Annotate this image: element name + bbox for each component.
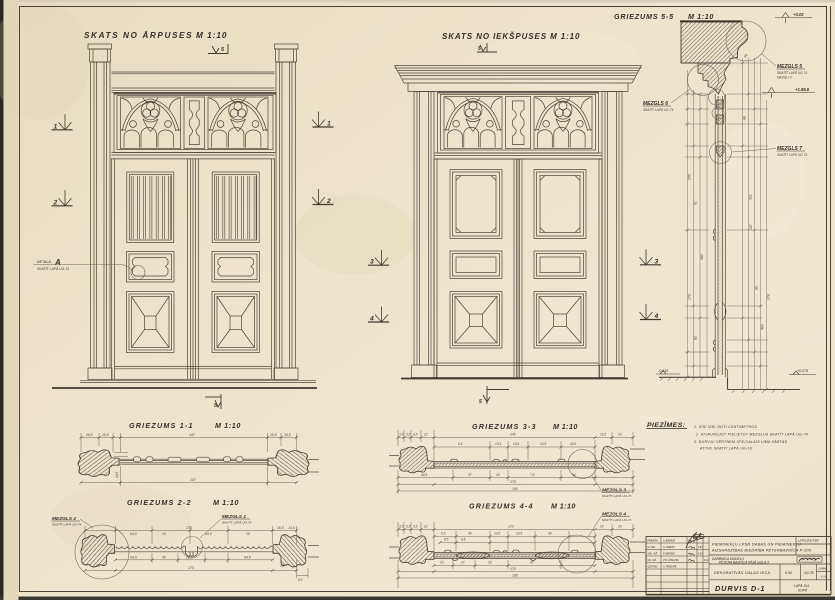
svg-text:14,5: 14,5 [288, 526, 295, 530]
svg-text:6.12: 6.12 [704, 560, 709, 562]
svg-text:6.04: 6.04 [785, 571, 792, 575]
svg-text:34: 34 [468, 532, 472, 536]
svg-text:178: 178 [510, 567, 516, 571]
svg-text:UG-78: UG-78 [804, 571, 814, 575]
svg-text:5: 5 [478, 46, 481, 52]
svg-text:82: 82 [694, 336, 698, 340]
svg-text:482: 482 [700, 254, 704, 260]
svg-text:KOPĀ: KOPĀ [798, 589, 808, 593]
svg-text:8,5: 8,5 [298, 578, 303, 582]
svg-text:3,5: 3,5 [399, 433, 404, 437]
svg-text:3: 3 [655, 258, 659, 265]
svg-text:14,5: 14,5 [115, 472, 119, 478]
svg-text:ATTIKI SKATĪT LAPĀ UG-16: ATTIKI SKATĪT LAPĀ UG-16 [699, 447, 752, 451]
svg-text:172: 172 [508, 525, 514, 529]
svg-text:14,5: 14,5 [540, 442, 546, 446]
svg-text:9,5: 9,5 [461, 538, 466, 542]
svg-text:M 1:10: M 1:10 [553, 422, 578, 431]
svg-text:GRIEZUMS 4-4: GRIEZUMS 4-4 [469, 502, 534, 511]
svg-text:14: 14 [600, 525, 604, 529]
svg-text:3: 3 [370, 259, 374, 266]
svg-text:4: 4 [369, 316, 374, 323]
svg-text:LATVIJAS PSR: LATVIJAS PSR [798, 539, 819, 543]
svg-text:M 1:10: M 1:10 [688, 12, 714, 21]
svg-text:10,5: 10,5 [270, 433, 277, 437]
svg-text:12: 12 [424, 433, 428, 437]
svg-text:V.B. LĪVMANIS: V.B. LĪVMANIS [663, 559, 679, 562]
svg-text:PRIEKŠN.: PRIEKŠN. [648, 540, 659, 543]
svg-text:GRIEZUMS 1-1: GRIEZUMS 1-1 [129, 421, 194, 430]
svg-text:IZ. DAĻ.: IZ. DAĻ. [647, 546, 656, 549]
svg-text:145: 145 [510, 433, 516, 437]
svg-text:42: 42 [530, 561, 534, 565]
svg-text:SKATĪT LAPĀ UG-74: SKATĪT LAPĀ UG-74 [602, 518, 632, 522]
svg-text:4.82: 4.82 [698, 553, 703, 556]
svg-text:PĒTERA BAZNĪCA RĪGĀ GOLA 3: PĒTERA BAZNĪCA RĪGĀ GOLA 3 [719, 560, 769, 564]
svg-text:10,5: 10,5 [186, 556, 193, 560]
svg-text:SKATĪT LAPĀ UG-74: SKATĪT LAPĀ UG-74 [37, 267, 69, 271]
svg-text:+0.075: +0.075 [797, 369, 808, 373]
svg-text:A. PRIEDĪTE: A. PRIEDĪTE [662, 566, 677, 569]
svg-text:147: 147 [189, 433, 195, 437]
svg-text:13,5: 13,5 [494, 532, 500, 536]
svg-text:255: 255 [688, 174, 692, 181]
svg-text:37: 37 [468, 473, 472, 477]
svg-text:178: 178 [510, 480, 516, 484]
svg-text:DETAĻA: DETAĻA [37, 260, 51, 264]
svg-text:64,5: 64,5 [130, 532, 137, 536]
svg-text:278: 278 [767, 294, 771, 301]
svg-text:44,5: 44,5 [421, 473, 427, 477]
svg-text:M 1:10: M 1:10 [215, 421, 241, 430]
svg-text:16,5: 16,5 [86, 433, 93, 437]
svg-text:187: 187 [749, 224, 753, 230]
svg-text:7,5: 7,5 [530, 473, 535, 477]
svg-text:460: 460 [761, 324, 765, 330]
svg-text:2: 2 [326, 198, 331, 205]
svg-text:1. VISI IZM. DOTI CENTIMETROS: 1. VISI IZM. DOTI CENTIMETROS [694, 425, 757, 429]
svg-text:91: 91 [694, 201, 698, 205]
svg-text:GR. INŽ.: GR. INŽ. [648, 559, 657, 562]
svg-text:A. BIRZIŅŠ: A. BIRZIŅŠ [662, 540, 675, 543]
svg-text:19: 19 [162, 532, 166, 536]
svg-text:4.82: 4.82 [698, 546, 703, 549]
svg-text:PIEMINEKĻU LPSR DABAS UN P: PIEMINEKĻU LPSR DABAS UN PIEMINEKĻU [712, 543, 801, 547]
svg-text:P. BIRZIŅŠ: P. BIRZIŅŠ [663, 553, 675, 556]
svg-text:LAPĀ 104: LAPĀ 104 [794, 584, 809, 588]
svg-text:16,5: 16,5 [570, 442, 576, 446]
svg-text:PIEZĪMES:: PIEZĪMES: [647, 421, 686, 429]
svg-text:10: 10 [440, 561, 444, 565]
svg-text:5: 5 [479, 399, 482, 405]
svg-text:MEZGLI 3: MEZGLI 3 [777, 76, 792, 80]
svg-text:173: 173 [188, 566, 194, 570]
svg-text:GRIEZUMS 5-5: GRIEZUMS 5-5 [614, 12, 674, 21]
svg-text:8,5: 8,5 [444, 538, 449, 542]
svg-text:+1.99,5: +1.99,5 [795, 87, 810, 92]
svg-text:LAPAS: LAPAS [819, 567, 828, 571]
svg-text:2. ATJAUNOJOT PIELIETOT MEZGLU: 2. ATJAUNOJOT PIELIETOT MEZGLUS SKATĪT L… [695, 433, 808, 437]
svg-text:SKATĪT LAPĀ UG-74: SKATĪT LAPĀ UG-74 [777, 153, 807, 157]
svg-text:SKATĪT LAPĀ UG-74: SKATĪT LAPĀ UG-74 [602, 494, 632, 498]
svg-text:DURVIS D-1: DURVIS D-1 [715, 584, 765, 593]
svg-text:9,5: 9,5 [413, 433, 418, 437]
svg-text:SKATĪT LAPĀ UG-74: SKATĪT LAPĀ UG-74 [777, 71, 807, 75]
svg-text:302: 302 [749, 194, 753, 200]
svg-text:34: 34 [572, 473, 576, 477]
svg-text:13,5: 13,5 [495, 442, 501, 446]
svg-text:173: 173 [186, 526, 192, 530]
svg-text:G. DURVIS: G. DURVIS [663, 547, 675, 549]
svg-text:18: 18 [496, 473, 500, 477]
svg-text:12: 12 [424, 525, 428, 529]
svg-text:48: 48 [743, 116, 747, 120]
svg-text:173: 173 [688, 294, 692, 300]
svg-text:6,5: 6,5 [458, 442, 463, 446]
svg-text:64,5: 64,5 [130, 556, 137, 560]
svg-text:SKATĪT LAPĀ UG-74: SKATĪT LAPĀ UG-74 [222, 521, 252, 525]
svg-text:3. DURVJU VĒRTNEM SPECIALAIS L: 3. DURVJU VĒRTNEM SPECIALAIS LĪMA KĀRTAS [694, 440, 787, 444]
svg-text:89: 89 [755, 286, 759, 290]
svg-text:2: 2 [53, 199, 58, 206]
svg-text:4: 4 [654, 313, 659, 320]
svg-text:GRIEZUMS 3-3: GRIEZUMS 3-3 [472, 422, 537, 431]
svg-text:DEKORATĪVĀS DAĻAS IECA: DEKORATĪVĀS DAĻAS IECA [714, 571, 770, 575]
svg-text:1: 1 [54, 123, 58, 130]
svg-text:19: 19 [246, 532, 250, 536]
svg-text:5,5: 5,5 [406, 525, 411, 529]
svg-text:195: 195 [512, 487, 518, 491]
svg-text:195: 195 [512, 574, 518, 578]
svg-text:A: A [54, 258, 61, 267]
svg-text:64,5: 64,5 [244, 556, 251, 560]
svg-text:AIZSARDZĪBAS BIEDRĪBA PĒTERB: AIZSARDZĪBAS BIEDRĪBA PĒTERBAZNĪCA P-105 [711, 549, 812, 553]
svg-text:M 1:10: M 1:10 [213, 498, 239, 507]
svg-text:3,5: 3,5 [399, 525, 404, 529]
svg-text:18: 18 [618, 525, 622, 529]
svg-text:17: 17 [461, 561, 465, 565]
svg-text:45: 45 [162, 556, 166, 560]
svg-text:SKATĪT LAPĀ UG-74: SKATĪT LAPĀ UG-74 [643, 108, 673, 112]
svg-text:18: 18 [280, 564, 284, 568]
svg-text:10,5: 10,5 [102, 433, 109, 437]
svg-text:10,5: 10,5 [516, 532, 522, 536]
svg-text:SKATS NO ĀRPUSES: SKATS NO ĀRPUSES [84, 30, 193, 40]
svg-text:18: 18 [96, 564, 100, 568]
svg-text:1-10: 1-10 [821, 575, 827, 579]
svg-text:M 1:10: M 1:10 [551, 502, 576, 511]
svg-text:16,5: 16,5 [600, 433, 606, 437]
svg-text:GRIEZUMS 2-2: GRIEZUMS 2-2 [127, 498, 192, 507]
svg-text:SKATS NO IEKŠPUSES M 1:10: SKATS NO IEKŠPUSES M 1:10 [442, 32, 580, 41]
svg-text:147: 147 [190, 478, 196, 482]
svg-text:64,5: 64,5 [205, 532, 212, 536]
svg-text:-0.015: -0.015 [658, 369, 668, 373]
svg-text:9,5: 9,5 [413, 525, 418, 529]
svg-text:SKATĪT LAPĀ UG-74: SKATĪT LAPĀ UG-74 [52, 523, 82, 527]
svg-text:6,5: 6,5 [441, 532, 446, 536]
svg-text:M 1:10: M 1:10 [196, 31, 227, 40]
svg-text:IZSTRĀD.: IZSTRĀD. [647, 566, 658, 569]
svg-text:10,5: 10,5 [513, 442, 519, 446]
svg-text:+3.02: +3.02 [793, 12, 804, 17]
svg-text:VAD. INŽ.: VAD. INŽ. [648, 553, 659, 556]
svg-text:16,5: 16,5 [277, 526, 284, 530]
svg-text:16,5: 16,5 [284, 433, 291, 437]
svg-text:5,5: 5,5 [406, 433, 411, 437]
svg-text:26: 26 [487, 561, 492, 565]
svg-text:18: 18 [618, 433, 622, 437]
svg-text:34: 34 [548, 532, 552, 536]
svg-text:1: 1 [327, 121, 331, 128]
